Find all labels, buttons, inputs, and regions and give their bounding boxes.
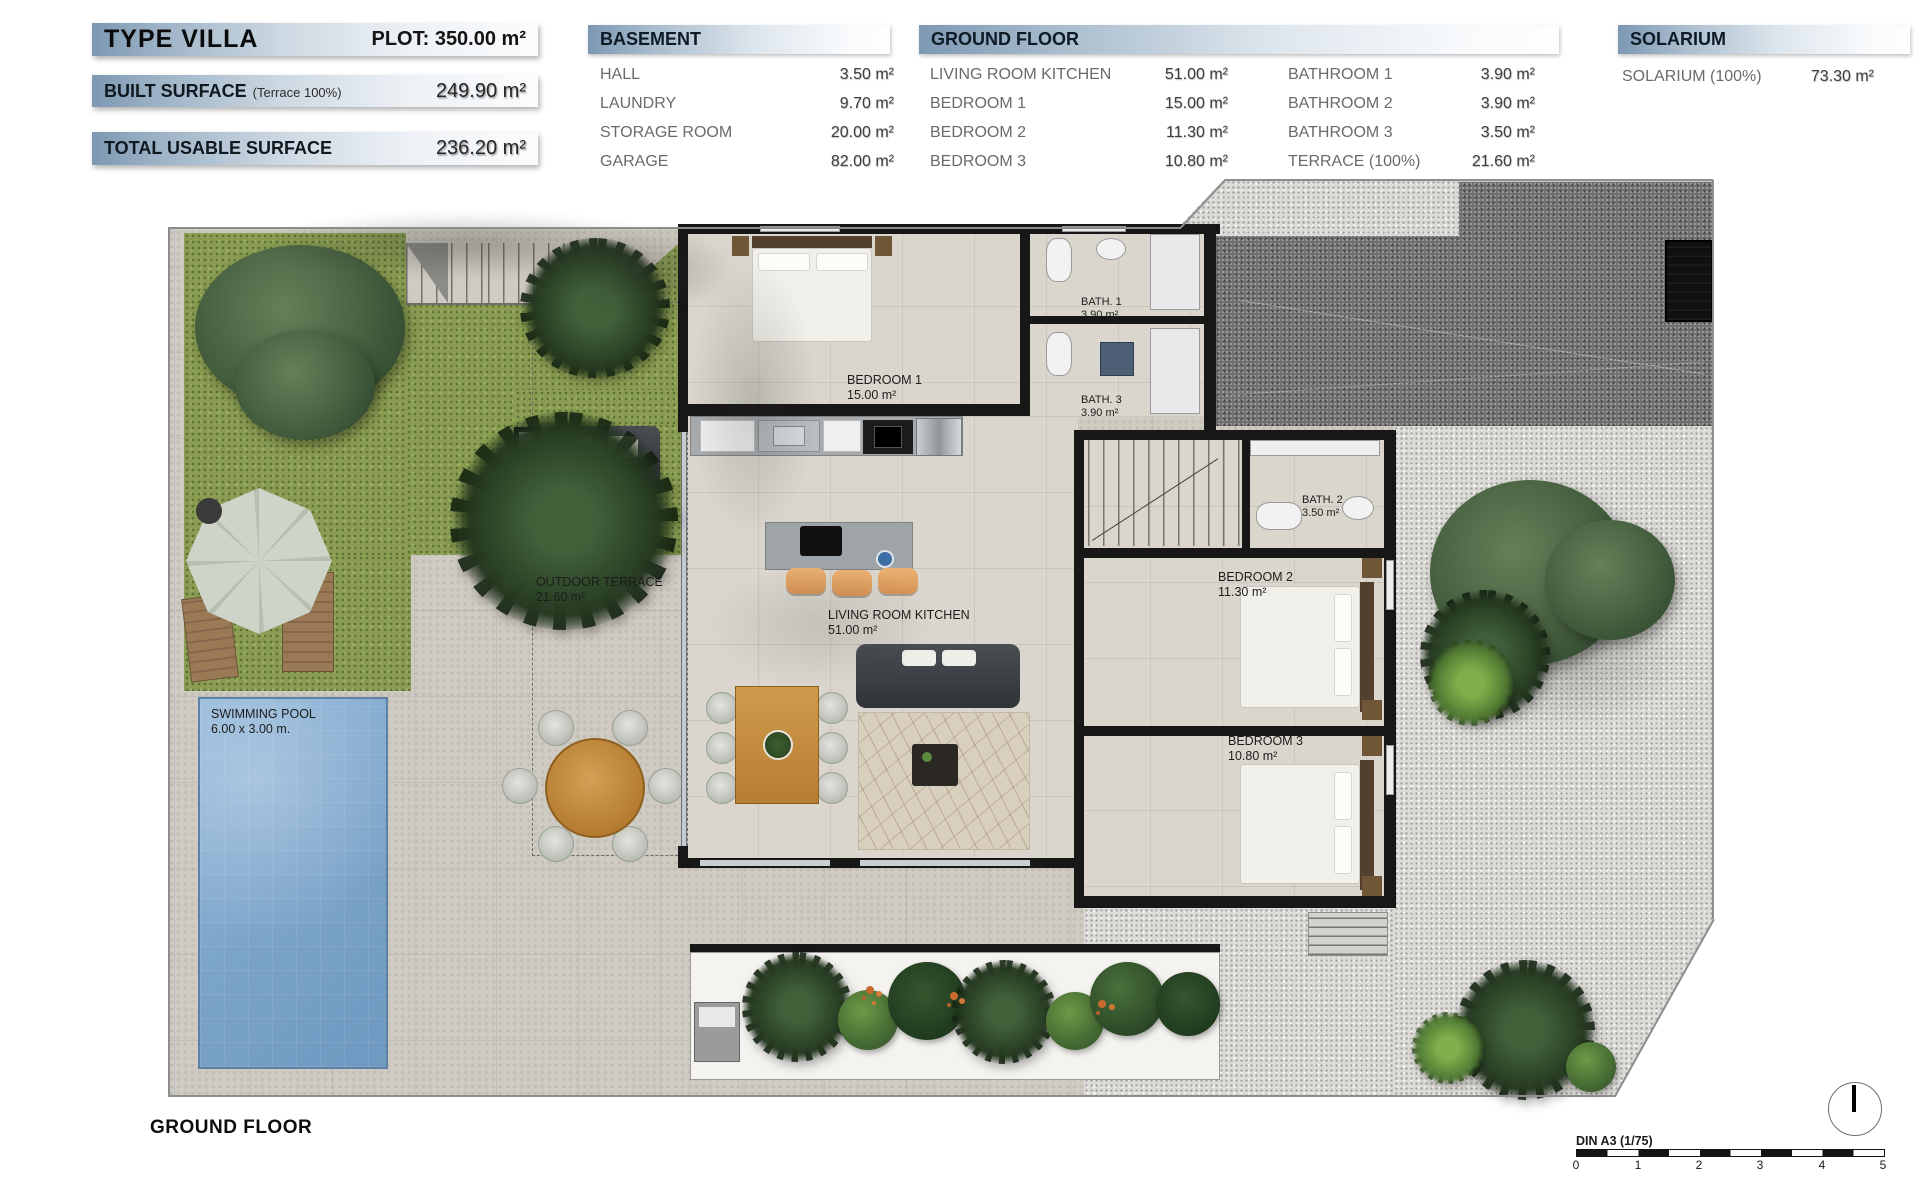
fridge [916, 418, 962, 456]
room-area: 3.50 m² [1302, 507, 1343, 520]
swimming-pool-label: SWIMMING POOL 6.00 x 3.00 m. [211, 707, 316, 737]
swimming-pool [198, 697, 388, 1069]
shower [1150, 328, 1200, 414]
nightstand [1362, 876, 1382, 896]
dining-chair [706, 692, 738, 724]
shadow-blob [688, 255, 818, 545]
room-area: 3.90 m² [1081, 407, 1122, 420]
floor-title: GROUND FLOOR [150, 1117, 312, 1139]
room-name: BATH. 1 [1081, 296, 1122, 309]
scale-tick: 0 [1566, 1158, 1586, 1172]
bed-headboard [1360, 582, 1374, 712]
window-wall-west [681, 424, 687, 858]
flower-cluster [866, 986, 874, 994]
sliding-window [860, 860, 1030, 866]
bedroom1-label: BEDROOM 1 15.00 m² [847, 373, 922, 403]
palm-bush [1428, 640, 1514, 726]
room-name: LIVING ROOM KITCHEN [828, 608, 970, 623]
wall-baths-east [1204, 224, 1216, 430]
outdoor-chair [538, 826, 574, 862]
room-area: 15.00 m² [847, 388, 922, 403]
window [1386, 745, 1394, 795]
nightstand [1362, 558, 1382, 578]
plot-boundary [1225, 179, 1713, 181]
pillow [816, 253, 868, 271]
toilet [1256, 502, 1302, 530]
wall-post [678, 416, 688, 432]
room-name: BEDROOM 1 [847, 373, 922, 388]
dining-chair [816, 692, 848, 724]
floor-plan-canvas: BEDROOM 1 15.00 m² BATH. 1 3.90 m² BATH.… [0, 0, 1920, 1192]
dining-chair [706, 732, 738, 764]
hedge-bush [1090, 962, 1164, 1036]
north-arrow-needle [1852, 1085, 1856, 1112]
bedroom2-label: BEDROOM 2 11.30 m² [1218, 570, 1293, 600]
room-name: BEDROOM 3 [1228, 734, 1303, 749]
garden-wall-south [690, 944, 1220, 952]
vanity-counter [1250, 440, 1380, 456]
tree [1545, 520, 1675, 640]
sink [1342, 496, 1374, 520]
bath3-label: BATH. 3 3.90 m² [1081, 394, 1122, 420]
parasol-pole [196, 498, 222, 524]
outdoor-chair [648, 768, 684, 804]
kitchen-cabinet [823, 420, 861, 452]
dining-chair [816, 772, 848, 804]
wall-wing-west [1074, 430, 1084, 908]
fence-line [174, 230, 175, 1094]
bed-headboard [1360, 760, 1374, 890]
pillow [1334, 772, 1352, 820]
room-area: 6.00 x 3.00 m. [211, 722, 316, 737]
living-room-label: LIVING ROOM KITCHEN 51.00 m² [828, 608, 970, 638]
scale-tick: 3 [1750, 1158, 1770, 1172]
wall-wing-east [1384, 430, 1396, 908]
pillow [1334, 826, 1352, 874]
shower-column [1100, 342, 1134, 376]
oven-door [874, 426, 902, 448]
room-name: BATH. 3 [1081, 394, 1122, 407]
rear-exterior-steps [1308, 912, 1388, 956]
table-plant [922, 752, 932, 762]
dining-chair [706, 772, 738, 804]
room-area: 10.80 m² [1228, 749, 1303, 764]
wall-wing-south [1074, 896, 1394, 908]
sliding-window [700, 860, 830, 866]
scale-tick: 5 [1873, 1158, 1893, 1172]
wall-stairs-bath2 [1242, 438, 1250, 548]
bed-headboard [752, 236, 872, 248]
outdoor-round-table [545, 738, 645, 838]
window [1386, 560, 1394, 610]
room-area: 3.90 m² [1081, 309, 1122, 322]
hedge-bush [1156, 972, 1220, 1036]
toilet [1046, 238, 1072, 282]
room-area: 21.60 m² [536, 590, 663, 605]
hedge-palm [952, 960, 1056, 1064]
bath1-label: BATH. 1 3.90 m² [1081, 296, 1122, 322]
pillow [1334, 648, 1352, 696]
floor-plan-page: TYPE VILLA PLOT: 350.00 m² BUILT SURFACE… [0, 0, 1920, 1192]
utility-box-lid [699, 1007, 735, 1027]
bedroom3-label: BEDROOM 3 10.80 m² [1228, 734, 1303, 764]
room-name: SWIMMING POOL [211, 707, 316, 722]
scale-bar [1576, 1149, 1885, 1157]
scale-tick: 2 [1689, 1158, 1709, 1172]
bath2-label: BATH. 2 3.50 m² [1302, 494, 1343, 520]
room-name: BATH. 2 [1302, 494, 1343, 507]
olive-tree [235, 330, 375, 440]
plot-boundary [1712, 180, 1714, 919]
scale-label: DIN A3 (1/75) [1576, 1134, 1653, 1148]
sofa-cushion [942, 650, 976, 666]
wall-bath2-bedroom2 [1074, 548, 1394, 558]
bush [1566, 1042, 1616, 1092]
hedge-palm [742, 952, 852, 1062]
nightstand [1362, 700, 1382, 720]
nightstand [875, 236, 892, 256]
shower [1150, 234, 1200, 310]
dining-chair [816, 732, 848, 764]
plot-boundary [168, 228, 170, 1096]
room-area: 11.30 m² [1218, 585, 1293, 600]
pillow [1334, 594, 1352, 642]
flower-cluster [1098, 1000, 1106, 1008]
plot-boundary [168, 227, 1181, 229]
coffee-table [912, 744, 958, 786]
solarium-stairs [1665, 240, 1713, 322]
flower-cluster [950, 992, 958, 1000]
wall-wing-north [1074, 430, 1394, 440]
outdoor-chair [538, 710, 574, 746]
toilet [1046, 332, 1072, 376]
room-name: OUTDOOR TERRACE [536, 575, 663, 590]
scale-tick: 4 [1812, 1158, 1832, 1172]
table-centerpiece [763, 730, 793, 760]
plot-boundary [168, 1095, 1615, 1097]
room-name: BEDROOM 2 [1218, 570, 1293, 585]
outdoor-terrace-label: OUTDOOR TERRACE 21.60 m² [536, 575, 663, 605]
sink [1096, 238, 1126, 260]
scale-tick: 1 [1628, 1158, 1648, 1172]
nightstand [1362, 736, 1382, 756]
outdoor-chair [502, 768, 538, 804]
palm-bush [1412, 1012, 1484, 1084]
outdoor-chair [612, 710, 648, 746]
room-area: 51.00 m² [828, 623, 970, 638]
